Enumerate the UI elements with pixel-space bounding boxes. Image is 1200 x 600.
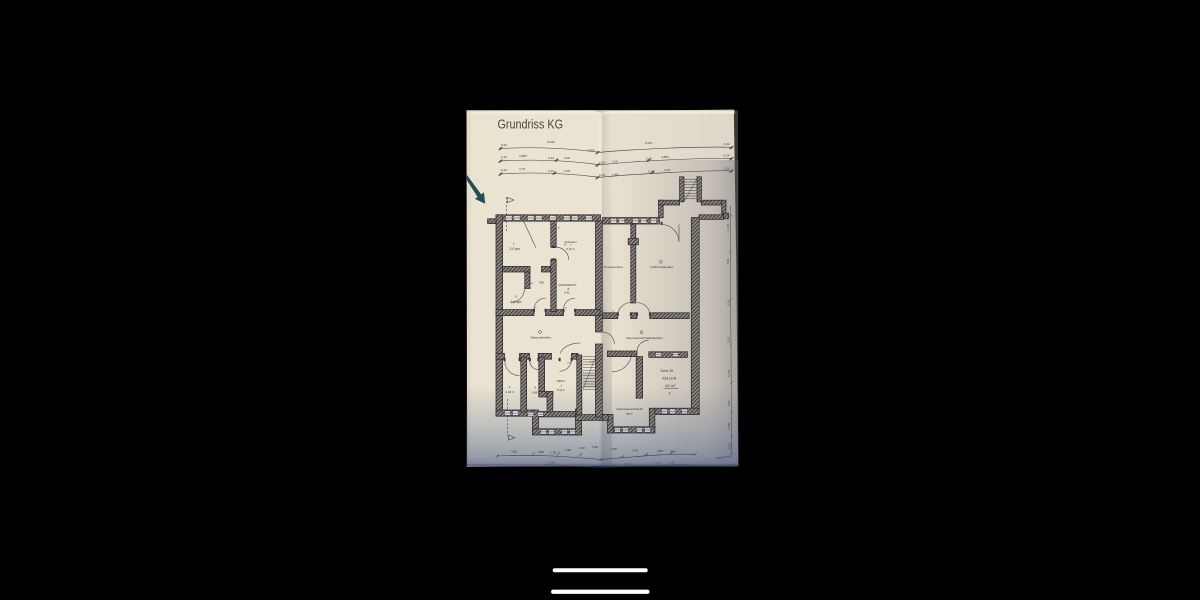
svg-text:5.: 5.: [535, 385, 538, 389]
svg-text:2.: 2.: [669, 391, 672, 395]
svg-text:3,885: 3,885: [661, 155, 669, 159]
svg-text:3,885: 3,885: [519, 154, 527, 158]
svg-text:0,24: 0,24: [724, 142, 730, 146]
svg-text:2,01: 2,01: [727, 400, 731, 406]
svg-text:Trockenraum: Trockenraum: [604, 265, 624, 269]
svg-text:Grundriss KG: Grundriss KG: [498, 117, 564, 132]
svg-text:3,78: 3,78: [519, 167, 525, 171]
svg-text:0,24: 0,24: [599, 160, 605, 164]
svg-text:3,78: 3,78: [632, 448, 638, 452]
svg-text:8,047: 8,047: [645, 141, 653, 145]
svg-text:14,15: 14,15: [548, 460, 555, 464]
svg-text:1,98: 1,98: [579, 446, 585, 450]
svg-text:3,11: 3,11: [610, 462, 616, 466]
svg-text:0,24: 0,24: [726, 300, 730, 306]
svg-text:KELLER: KELLER: [663, 377, 677, 381]
svg-text:Gemeinschaftskeller: Gemeinschaftskeller: [626, 336, 663, 340]
svg-text:OVP: OVP: [589, 361, 594, 363]
svg-text:GEW.1: GEW.1: [557, 379, 566, 383]
svg-text:OVP: OVP: [567, 362, 572, 364]
svg-text:0,24: 0,24: [588, 148, 594, 152]
svg-text:2,95: 2,95: [612, 172, 618, 176]
svg-text:4,15: 4,15: [655, 461, 661, 465]
svg-text:3,02: 3,02: [612, 159, 618, 163]
svg-text:5 Q.C: 5 Q.C: [557, 388, 566, 392]
svg-text:420: 420: [539, 280, 544, 284]
svg-text:0,24: 0,24: [501, 155, 507, 159]
svg-text:5,98: 5,98: [592, 445, 598, 449]
svg-text:2,15: 2,15: [624, 462, 630, 466]
svg-text:0,24: 0,24: [649, 169, 655, 173]
svg-text:62 m²: 62 m²: [666, 384, 676, 388]
svg-text:0,485: 0,485: [727, 422, 731, 430]
svg-text:3,85: 3,85: [511, 450, 517, 454]
svg-text:Fahrradkeller: Fahrradkeller: [651, 265, 674, 269]
svg-text:Schä. 35.: Schä. 35.: [661, 369, 675, 373]
svg-text:raum: raum: [626, 411, 633, 415]
svg-text:Waschkeller: Waschkeller: [531, 335, 552, 339]
svg-text:0,24: 0,24: [548, 169, 554, 173]
svg-text:1.: 1.: [513, 242, 516, 246]
svg-text:3,78: 3,78: [664, 168, 670, 172]
svg-text:0,175: 0,175: [727, 369, 731, 377]
svg-text:4,185: 4,185: [727, 442, 731, 450]
svg-text:3,19: 3,19: [727, 337, 731, 343]
svg-text:0,24: 0,24: [501, 143, 507, 147]
svg-text:5,98: 5,98: [611, 447, 617, 451]
svg-text:2.6 qm: 2.6 qm: [511, 300, 522, 304]
svg-text:5.: 5.: [515, 294, 518, 298]
svg-text:0,24: 0,24: [646, 156, 652, 160]
svg-text:3,85: 3,85: [670, 449, 676, 453]
svg-text:5,01: 5,01: [726, 258, 730, 264]
svg-text:0,24: 0,24: [548, 156, 554, 160]
svg-text:4,04 C: 4,04 C: [506, 390, 516, 394]
svg-text:2.0 qm: 2.0 qm: [510, 247, 521, 251]
svg-text:3,02: 3,02: [564, 156, 570, 160]
svg-text:0,24: 0,24: [724, 166, 730, 170]
svg-text:1,78: 1,78: [550, 450, 556, 454]
svg-text:8,046: 8,046: [547, 140, 555, 144]
svg-text:0,24: 0,24: [599, 173, 605, 177]
svg-text:0,42: 0,42: [564, 291, 570, 295]
svg-text:0,42 C: 0,42 C: [567, 247, 575, 251]
svg-text:Hausanschluß-: Hausanschluß-: [617, 407, 644, 411]
svg-text:0,24: 0,24: [501, 168, 507, 172]
svg-text:2,95: 2,95: [564, 169, 570, 173]
svg-text:4,88: 4,88: [538, 450, 544, 454]
svg-text:4,88: 4,88: [657, 449, 663, 453]
svg-text:1,86 C: 1,86 C: [532, 390, 542, 394]
svg-text:0,24: 0,24: [724, 153, 730, 157]
svg-text:1,85: 1,85: [669, 461, 675, 465]
svg-text:4.: 4.: [509, 385, 512, 389]
svg-text:1,135: 1,135: [726, 223, 730, 231]
svg-text:5,98: 5,98: [565, 448, 571, 452]
